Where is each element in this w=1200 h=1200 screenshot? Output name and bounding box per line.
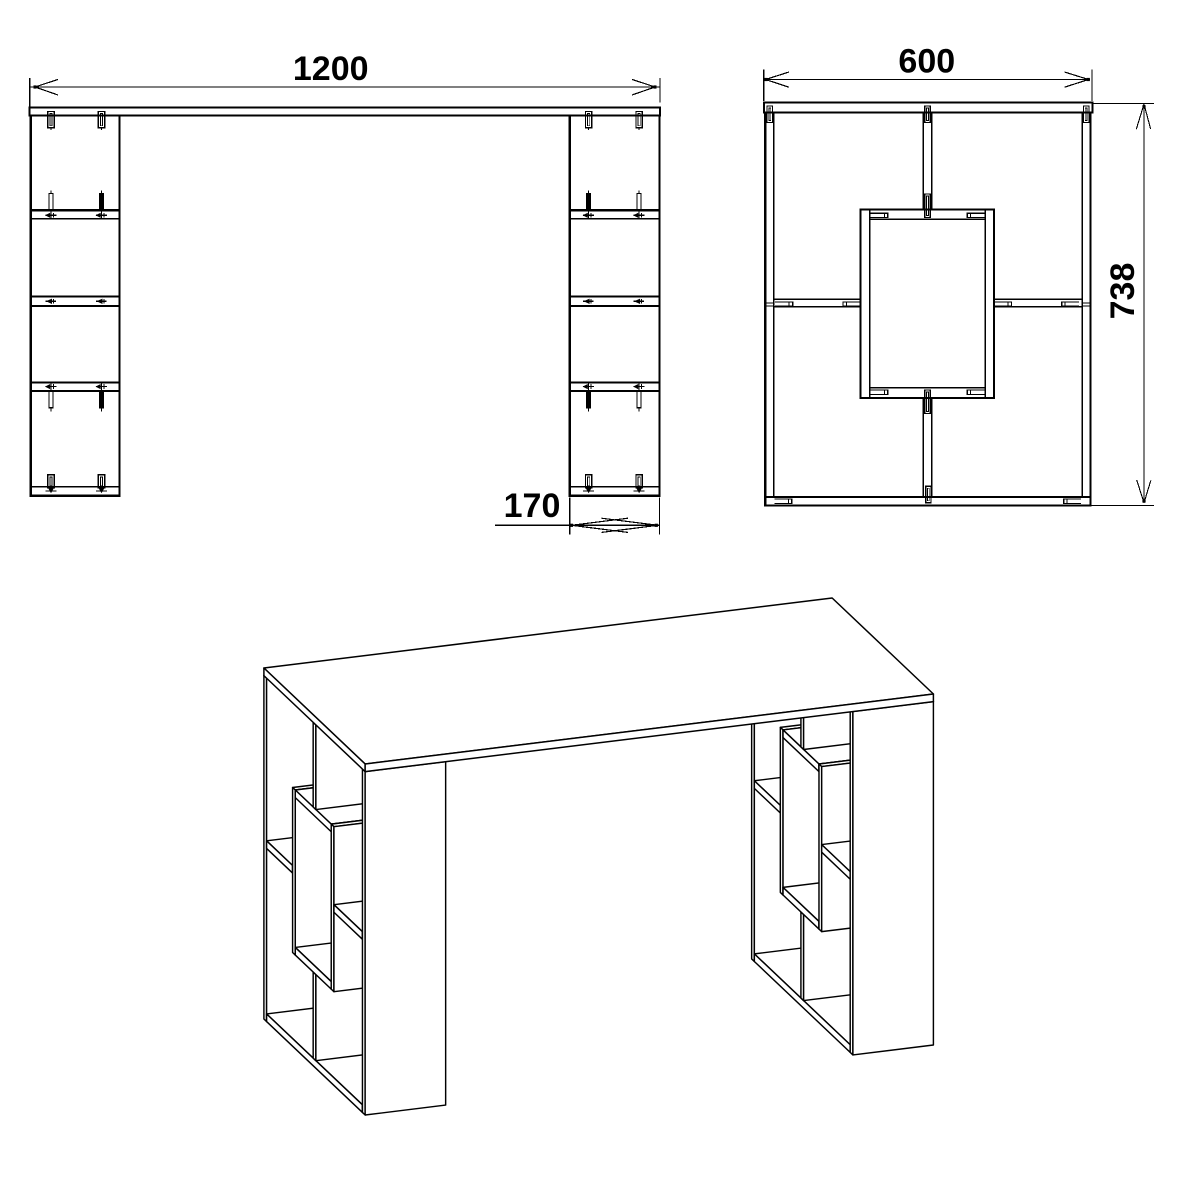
svg-text:1200: 1200 (293, 50, 369, 88)
svg-text:738: 738 (1104, 263, 1142, 320)
svg-text:170: 170 (504, 487, 561, 525)
svg-text:600: 600 (898, 43, 955, 81)
